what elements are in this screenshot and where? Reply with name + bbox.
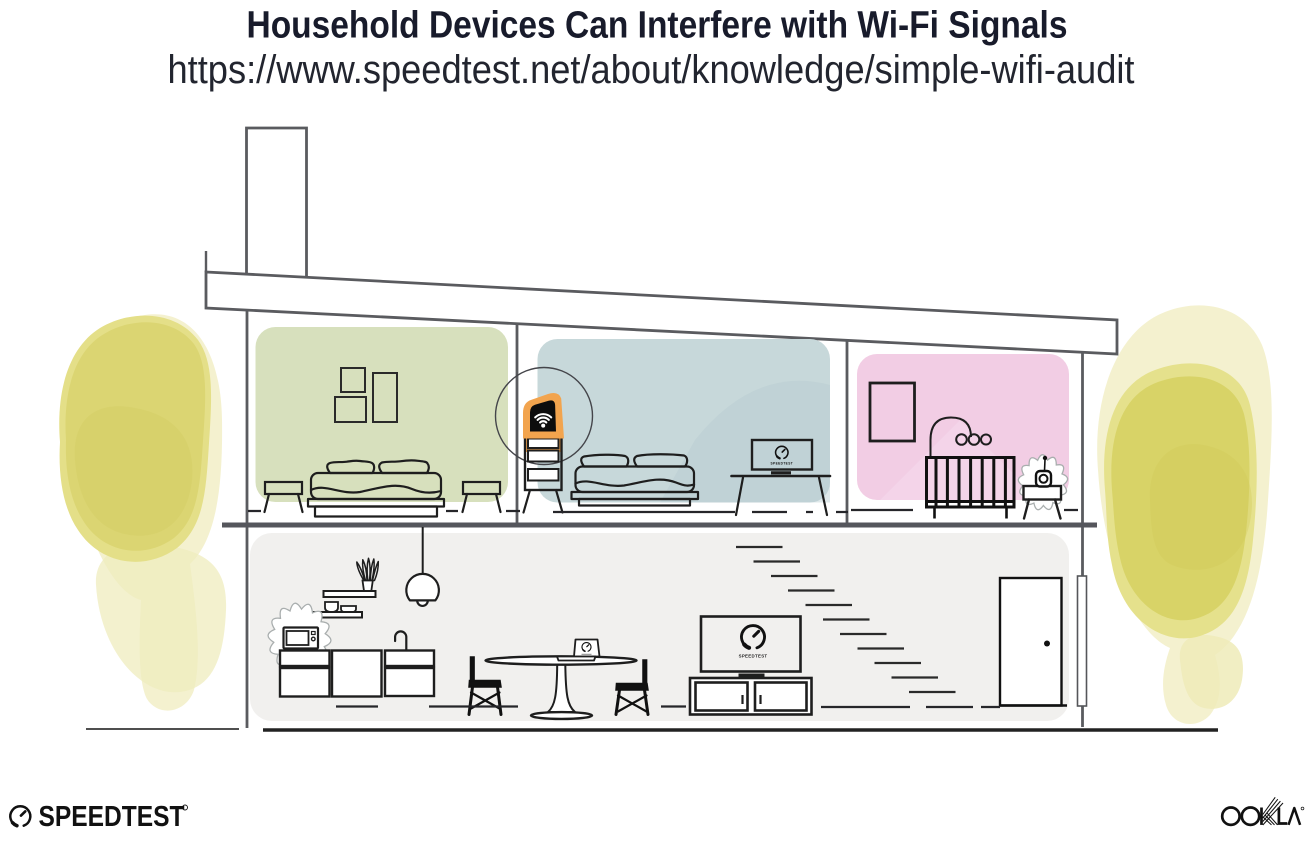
- svg-text:https://www.speedtest.net/abou: https://www.speedtest.net/about/knowledg…: [168, 48, 1135, 92]
- svg-text:Household Devices Can Interfer: Household Devices Can Interfere with Wi-…: [247, 5, 1068, 47]
- svg-text:SPEEDTEST: SPEEDTEST: [39, 801, 185, 833]
- svg-text:SPEEDTEST: SPEEDTEST: [739, 654, 768, 659]
- svg-text:SPEEDTEST: SPEEDTEST: [771, 462, 794, 466]
